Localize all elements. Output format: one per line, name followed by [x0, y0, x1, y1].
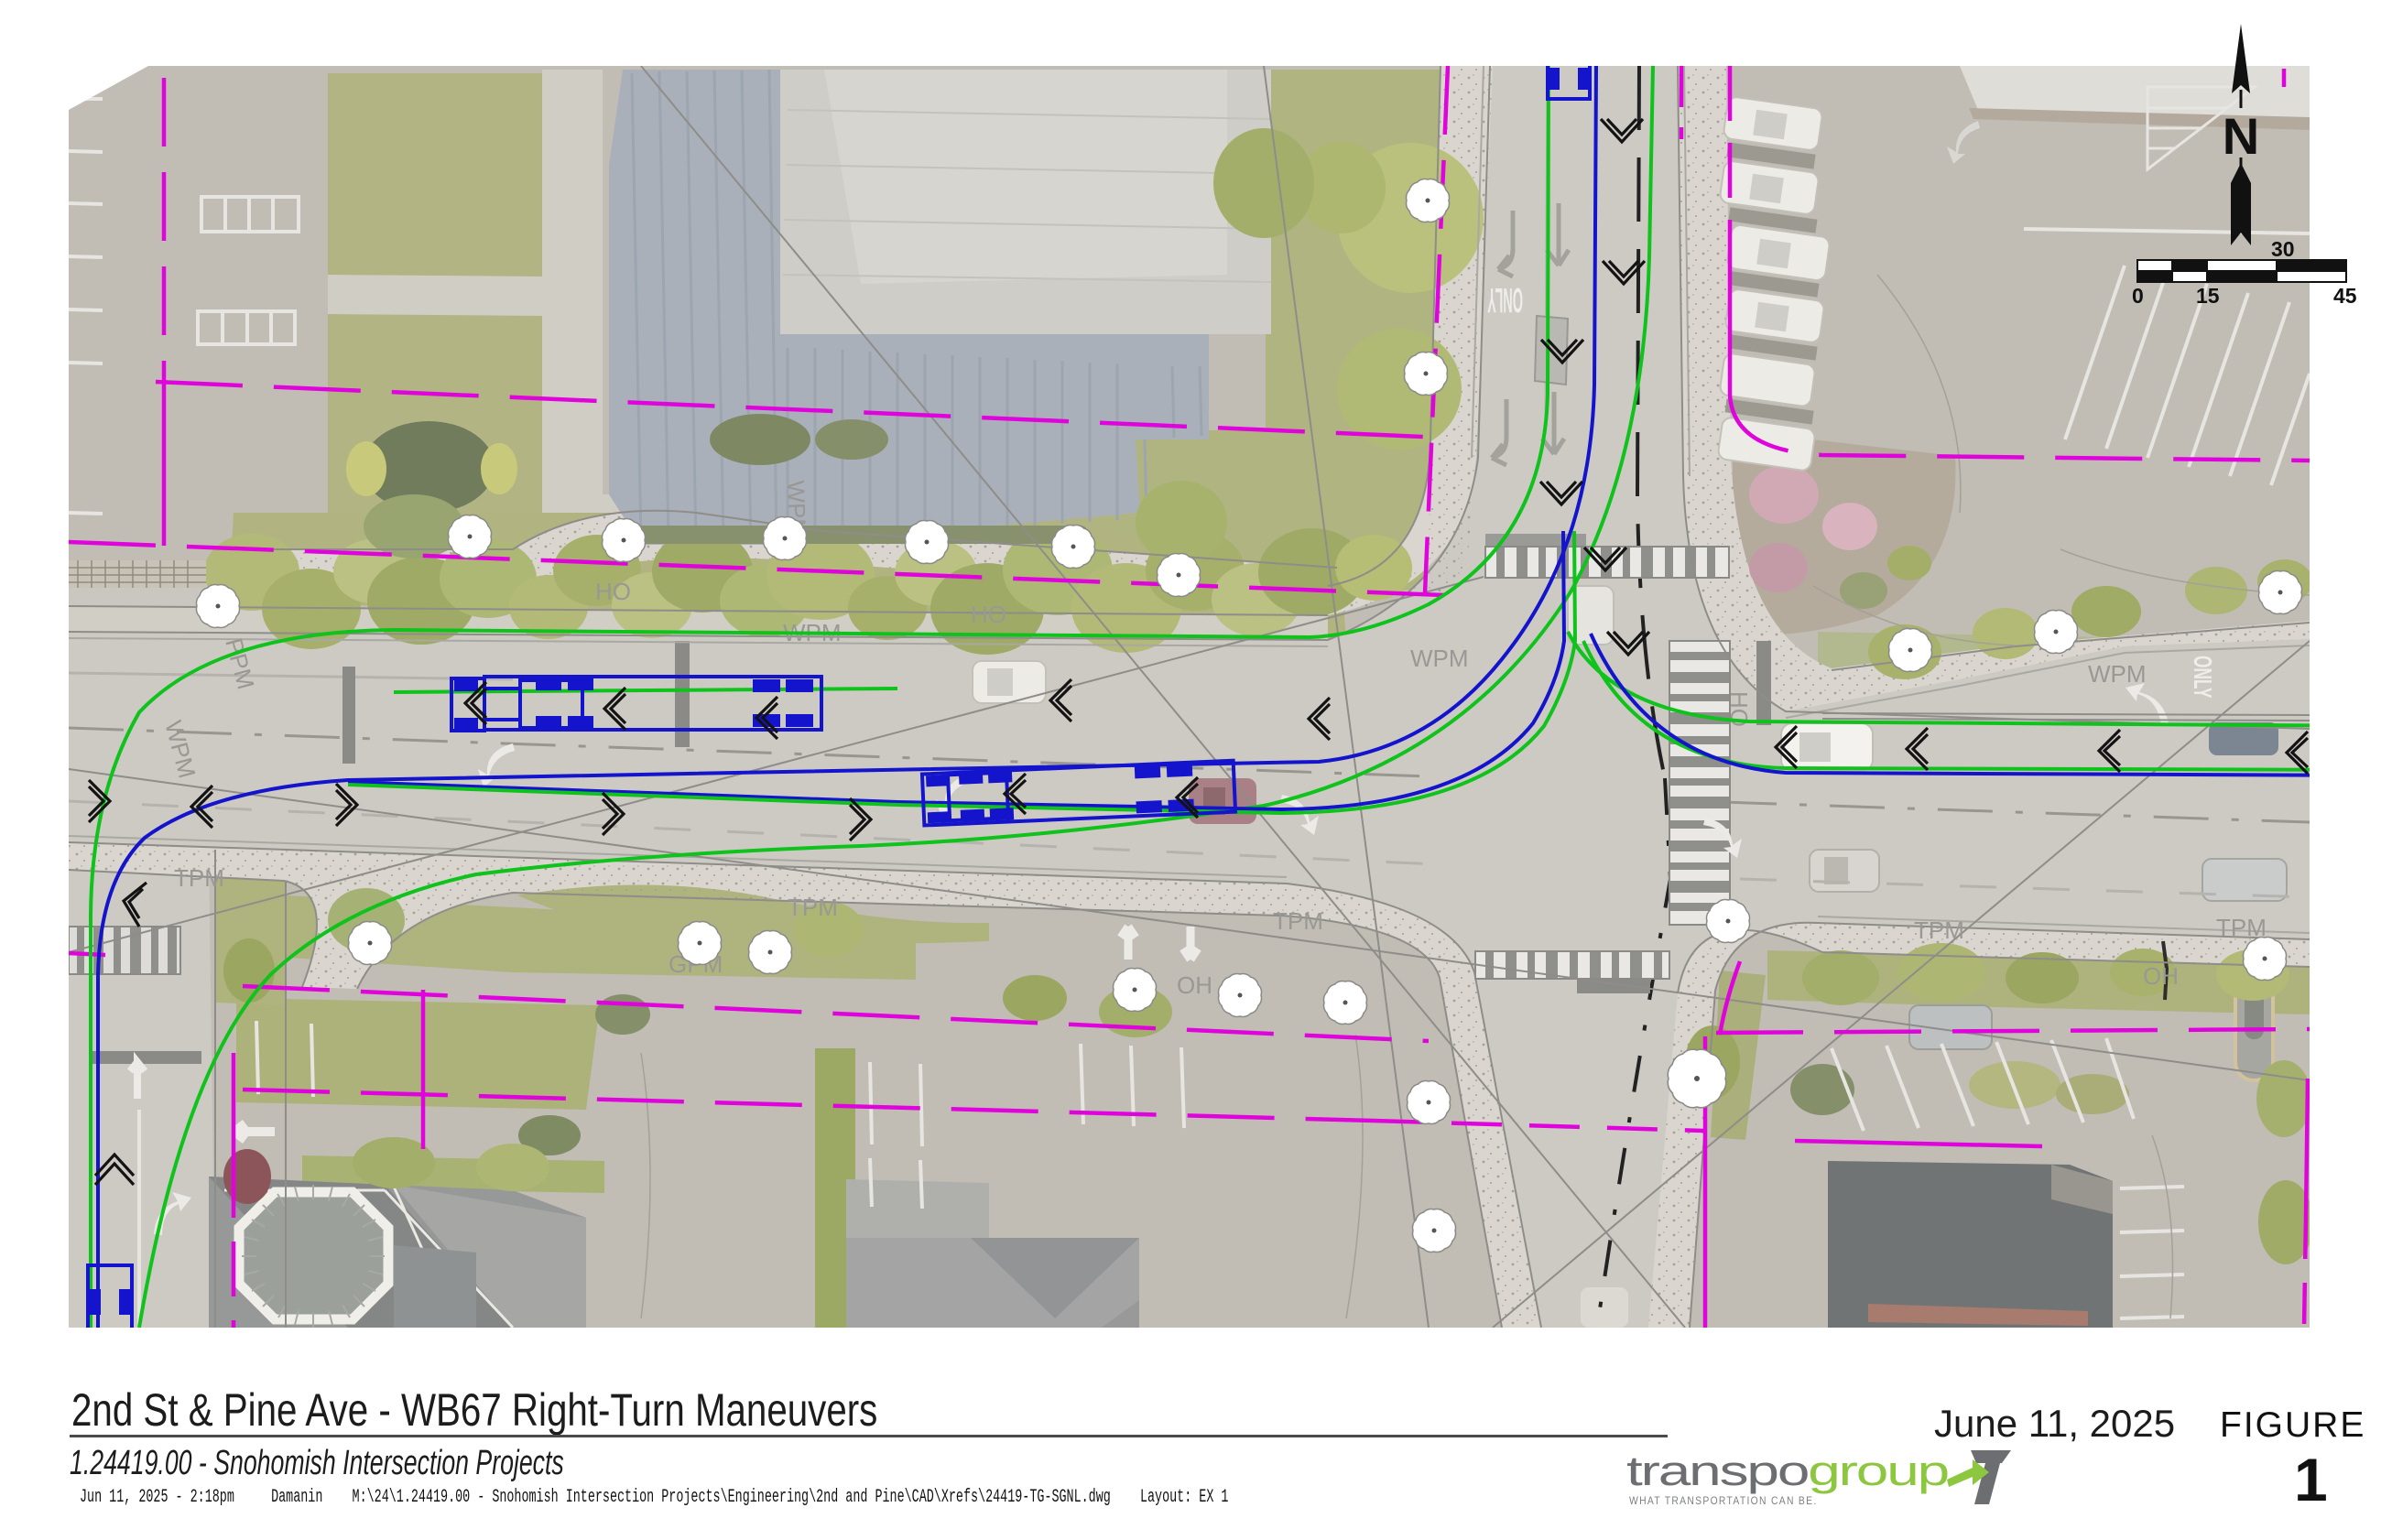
svg-text:ONLY: ONLY	[2189, 656, 2217, 699]
svg-text:ONLY: ONLY	[2334, 992, 2363, 1035]
svg-text:OH: OH	[1177, 971, 1212, 999]
svg-text:TPM: TPM	[1914, 916, 1964, 944]
svg-text:TPM: TPM	[1273, 907, 1323, 935]
svg-text:OH: OH	[2143, 962, 2179, 990]
svg-text:N: N	[2223, 107, 2259, 165]
svg-text:TPM: TPM	[174, 864, 224, 892]
svg-text:WPM: WPM	[1410, 645, 1469, 672]
svg-text:HO: HO	[971, 601, 1006, 628]
svg-text:0: 0	[2132, 284, 2144, 308]
svg-text:TPM: TPM	[788, 894, 838, 921]
svg-text:WPM: WPM	[2088, 660, 2147, 688]
svg-text:45: 45	[2333, 284, 2357, 308]
svg-text:15: 15	[2196, 284, 2220, 308]
svg-text:ONLY: ONLY	[1487, 280, 1523, 319]
svg-text:30: 30	[2271, 237, 2295, 261]
svg-text:HO: HO	[595, 578, 631, 605]
